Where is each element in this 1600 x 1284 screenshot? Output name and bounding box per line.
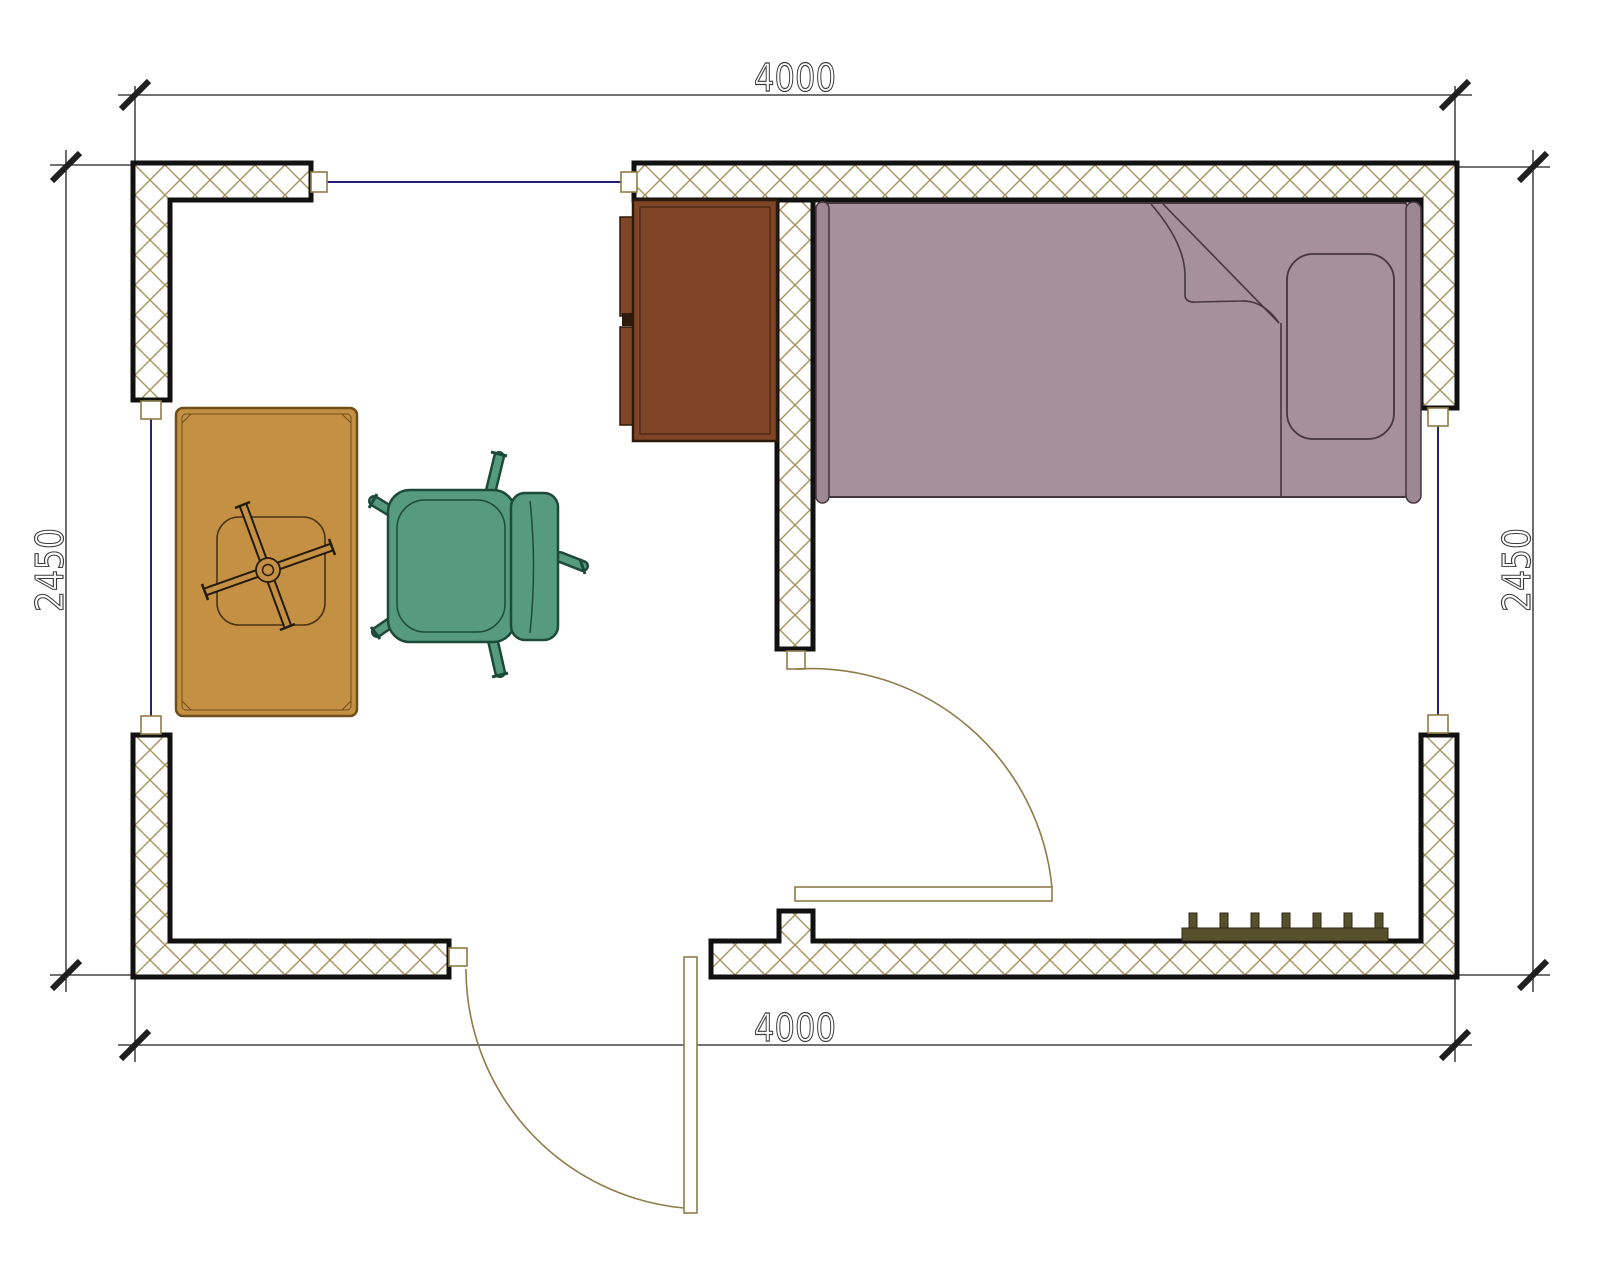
window-left (141, 401, 161, 734)
window-right (1428, 408, 1448, 733)
dimension-left: 2450 (28, 150, 131, 992)
dimension-right-label: 2450 (1495, 528, 1539, 612)
radiator-fin (1282, 913, 1290, 928)
table (176, 408, 357, 716)
window-top (311, 172, 637, 192)
dimension-bottom: 4000 (118, 979, 1472, 1062)
office-chair (369, 452, 585, 677)
bed-pillow (1287, 254, 1394, 439)
door-interior (787, 651, 1052, 901)
floor-plan: 4000 4000 2450 2450 (0, 0, 1600, 1280)
radiator-body (1182, 928, 1388, 941)
wall-interior-partition (777, 200, 813, 649)
cabinet-handle-notch (622, 313, 633, 326)
window-right-frame-bottom (1428, 715, 1448, 733)
chair-backrest (511, 493, 558, 640)
floor-plan-svg: 4000 4000 2450 2450 (0, 0, 1600, 1280)
dimension-right: 2450 (1459, 150, 1550, 992)
radiator-fin (1251, 913, 1259, 928)
door-interior-leaf (795, 887, 1052, 901)
window-left-frame-bottom (141, 716, 161, 734)
bed (816, 202, 1421, 503)
radiator-fin (1344, 913, 1352, 928)
cabinet-body (633, 200, 777, 441)
wall-bottom-left (133, 735, 449, 977)
cabinet-door-front-lower (620, 327, 633, 425)
cabinet-door-front-upper (620, 217, 633, 316)
table-cross-hub (256, 558, 280, 582)
door-interior-swing-arc (796, 669, 1052, 888)
door-exterior-jamb-marker (449, 948, 467, 966)
dimension-bottom-label: 4000 (754, 1006, 836, 1050)
door-exterior (449, 948, 697, 1213)
window-top-frame-left (311, 172, 327, 192)
cabinet (620, 200, 777, 441)
window-right-frame-top (1428, 408, 1448, 426)
radiator (1182, 913, 1388, 941)
wall-top-left (133, 163, 311, 400)
window-top-frame-right (621, 172, 637, 192)
bed-headboard-rail (1406, 202, 1421, 503)
window-left-frame-top (141, 401, 161, 419)
door-interior-jamb-marker (787, 651, 805, 669)
chair-seat (388, 490, 515, 642)
dimension-top-label: 4000 (754, 56, 836, 100)
radiator-fin (1313, 913, 1321, 928)
dimension-top: 4000 (118, 56, 1472, 161)
door-exterior-leaf (684, 957, 697, 1213)
radiator-fin (1220, 913, 1228, 928)
dimension-left-label: 2450 (28, 528, 72, 612)
door-exterior-swing-arc (466, 969, 684, 1208)
radiator-fin (1189, 913, 1197, 928)
bed-footboard-rail (816, 202, 829, 503)
radiator-fin (1375, 913, 1383, 928)
